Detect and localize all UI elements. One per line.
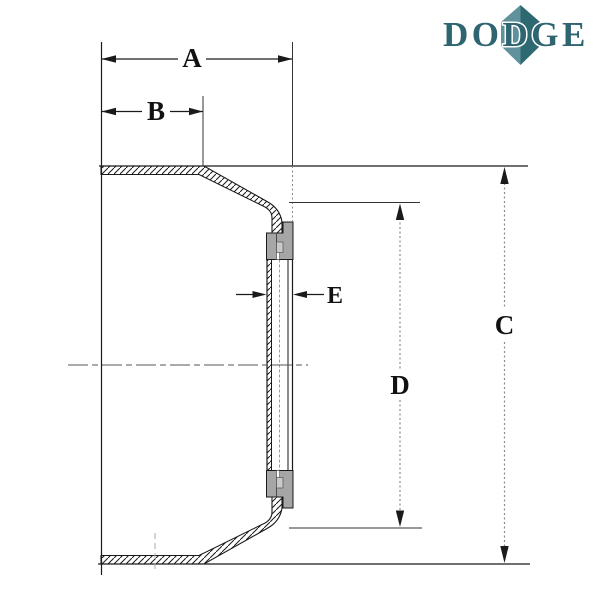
- top-hub-recess: [277, 242, 284, 253]
- dimensions: A B C D: [102, 42, 515, 563]
- drawing-page: A B C D: [0, 0, 600, 600]
- dim-a-arrow-left-icon: [102, 55, 117, 62]
- dim-d-arrow-up-icon: [396, 204, 404, 221]
- dim-b-arrow-left-icon: [102, 108, 117, 115]
- dim-a: A: [102, 43, 293, 73]
- dim-e-arrow-right-icon: [293, 291, 307, 298]
- dim-b: B: [102, 96, 204, 126]
- dim-c-arrow-down-icon: [500, 546, 508, 563]
- dodge-logo: DODGE: [443, 5, 589, 65]
- part-cross-section: [68, 42, 530, 575]
- dim-b-arrow-right-icon: [189, 108, 203, 115]
- lower-shell-band: [101, 497, 282, 564]
- dim-a-label: A: [182, 43, 202, 73]
- bottom-hub-recess: [277, 478, 284, 489]
- dim-d: D: [390, 204, 410, 528]
- upper-shell-band: [101, 166, 282, 233]
- dim-a-arrow-right-icon: [278, 55, 293, 62]
- dim-d-arrow-down-icon: [396, 511, 404, 528]
- dim-c-label: C: [495, 310, 515, 340]
- dim-e-arrow-left-icon: [253, 291, 267, 298]
- dodge-logo-text: DODGE: [443, 15, 589, 54]
- dim-b-label: B: [147, 96, 165, 126]
- top-hub-slot: [277, 253, 280, 260]
- dim-c-arrow-up-icon: [500, 167, 508, 184]
- technical-drawing-canvas: A B C D: [0, 0, 600, 600]
- dim-e-label: E: [327, 283, 343, 309]
- dim-d-label: D: [390, 370, 410, 400]
- bottom-hub-slot: [277, 471, 280, 478]
- dim-c: C: [495, 167, 515, 563]
- dim-e: E: [236, 283, 343, 309]
